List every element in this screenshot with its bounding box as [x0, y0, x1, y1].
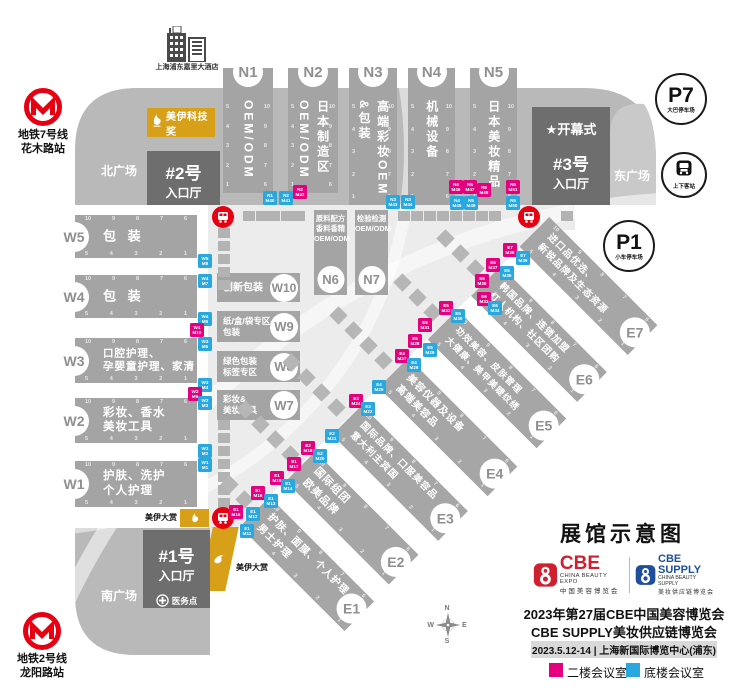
meeting-room-tag-M14[interactable]: E1M14 [281, 479, 295, 493]
grid-ticks: 54321 [75, 500, 197, 506]
star-icon: ★ [546, 122, 558, 137]
tag-code: M22 [364, 409, 373, 414]
grid-tick: 2 [546, 365, 552, 371]
hall-circle-W9: W9 [270, 313, 298, 341]
metro-line2-logo-icon [22, 611, 62, 651]
hall-W4[interactable]: W4包 装10987654321 [75, 275, 197, 318]
entrance-2-no: #2号 [147, 159, 220, 184]
south-plaza-label: 南广场 [101, 587, 147, 604]
tag-code: M48 [480, 190, 489, 195]
tag-code: M32 [442, 308, 451, 313]
meeting-room-tag-M42[interactable]: N2M42 [293, 185, 307, 199]
cbe-supply-logo-icon [635, 564, 656, 586]
grid-tick: 10 [85, 216, 91, 222]
grid-tick: 5 [85, 436, 88, 442]
meiyi-grand-award-label-2: 美伊大赏 [236, 562, 276, 573]
grid-tick: 1 [569, 388, 575, 394]
grid-tick: 1 [380, 570, 386, 576]
grid-tick: 10 [446, 104, 452, 110]
tag-code: M45 [453, 203, 462, 208]
grid-ticks: 109876 [75, 339, 197, 345]
grid-tick: 2 [291, 163, 294, 169]
grid-tick: 3 [134, 436, 137, 442]
cbe-logo-text: CBE [560, 555, 624, 572]
grid-tick: 9 [388, 127, 394, 133]
tag-code: M11 [243, 531, 252, 536]
grid-tick: 8 [598, 272, 604, 278]
grid-tick: 8 [549, 320, 555, 326]
meiyi-logo-icon [208, 548, 230, 569]
grid-tick: 6 [264, 182, 270, 188]
grid-tick: 7 [264, 163, 270, 169]
hall-label-W2: 彩妆、香水 美妆工具 [103, 406, 166, 436]
grid-tick: 8 [264, 143, 270, 149]
grid-tick: 3 [292, 573, 298, 579]
hall-N2[interactable]: N2日本制造区 OEM/ODM54321109876 [288, 68, 338, 193]
service-room-square [218, 254, 230, 264]
grid-tick: 9 [295, 528, 301, 534]
meeting-room-tag-M8[interactable]: W5M8 [198, 254, 212, 268]
meeting-room-tag-M44[interactable]: N3M44 [401, 195, 415, 209]
grid-tick: 2 [226, 163, 229, 169]
grid-ticks: 109876 [75, 216, 197, 222]
grid-tick: 3 [385, 482, 391, 488]
grid-ticks: 54321 [352, 104, 355, 200]
grid-tick: 2 [314, 595, 320, 601]
grid-tick: 7 [160, 399, 163, 405]
grid-tick: 2 [596, 318, 602, 324]
grid-tick: 6 [593, 364, 599, 370]
exhibition-map: { "colors":{"pink":"#e5007f","blue":"#29… [0, 0, 756, 690]
hall-label-W3: 口腔护理、 孕婴童护理、家清 [103, 347, 195, 374]
grid-tick: 4 [110, 500, 113, 506]
meeting-room-tag-M49[interactable]: N5M49 [464, 196, 478, 210]
tag-code: M2 [202, 451, 208, 456]
grid-ticks: 54321 [411, 104, 414, 200]
grid-tick: 3 [337, 527, 343, 533]
grid-tick: 3 [411, 149, 414, 155]
tag-code: M43 [389, 202, 398, 207]
meeting-room-tag-M48[interactable]: N5M48 [477, 183, 491, 197]
grid-tick: 2 [159, 376, 162, 382]
grid-ticks: 109876 [75, 399, 197, 405]
logo-divider [629, 557, 630, 593]
hall-N6[interactable]: 原料配方 香料香精 OEM/ODMN6 [314, 210, 347, 295]
tag-code: M25 [375, 387, 384, 392]
grid-tick: 2 [407, 504, 413, 510]
service-room-square [293, 211, 305, 221]
grid-tick: 8 [329, 143, 335, 149]
grid-tick: 9 [264, 124, 270, 130]
grid-tick: 7 [571, 342, 577, 348]
entrance-1-label: 入口厅 [143, 567, 210, 584]
entrance-2-hall[interactable]: #2号 入口厅 [147, 151, 220, 205]
hall-W2[interactable]: W2彩妆、香水 美妆工具10987654321 [75, 398, 197, 443]
service-room-square [489, 211, 501, 221]
meeting-room-tag-M28[interactable]: E5M28 [408, 334, 422, 348]
service-room-square [218, 228, 230, 238]
grid-tick: 7 [338, 571, 344, 577]
meeting-room-tag-M45[interactable]: N4M45 [450, 196, 464, 210]
meeting-room-tag-M15[interactable]: E1M15 [229, 505, 243, 519]
grid-tick: 5 [473, 104, 476, 110]
meeting-room-tag-M47[interactable]: N5M47 [463, 180, 477, 194]
grid-tick: 8 [508, 149, 514, 155]
meeting-room-tag-M11[interactable]: E1M11 [240, 524, 254, 538]
tag-code: M24 [352, 401, 361, 406]
grid-tick: 7 [388, 172, 394, 178]
meeting-room-tag-M46[interactable]: N4M46 [449, 180, 463, 194]
grid-tick: 4 [110, 311, 113, 317]
tag-code: M44 [404, 202, 413, 207]
grid-ticks: 54321 [75, 436, 197, 442]
grid-ticks: 109876 [75, 462, 197, 468]
grid-tick: 10 [85, 339, 91, 345]
metro-line2-label: 地铁2号线龙阳路站 [2, 652, 82, 681]
grid-tick: 9 [388, 437, 394, 443]
hall-label-N5: 日本美妆精品 [484, 100, 503, 190]
grid-tick: 6 [184, 216, 187, 222]
meeting-room-tag-M25[interactable]: E4M25 [372, 380, 386, 394]
grid-tick: 6 [184, 339, 187, 345]
grid-tick: 7 [383, 525, 389, 531]
pickup-dropoff-station[interactable]: 上下客站 [661, 152, 707, 198]
meiyi-logo-icon [189, 511, 201, 525]
grid-tick: 3 [473, 149, 476, 155]
tag-code: M18 [304, 448, 313, 453]
meeting-room-tag-M34[interactable]: E6M34 [488, 301, 502, 315]
grid-ticks: 54321 [226, 104, 229, 188]
tag-code: M37 [489, 265, 498, 270]
grid-tick: 1 [352, 194, 355, 200]
meeting-room-tag-M2[interactable]: W1M2 [198, 444, 212, 458]
grid-ticks: 54321 [75, 311, 197, 317]
grid-ticks: 54321 [75, 376, 197, 382]
hall-circle-N6: N6 [317, 266, 344, 293]
tag-code: M4 [202, 385, 208, 390]
service-room-square [268, 211, 280, 221]
entrance-2-label: 入口厅 [147, 184, 220, 201]
grid-tick: 6 [360, 593, 366, 599]
meiyi-logo-icon [150, 112, 164, 133]
grid-tick: 7 [160, 276, 163, 282]
tag-code: M14 [284, 486, 293, 491]
tag-code: M42 [296, 192, 305, 197]
hall-circle-N7: N7 [358, 266, 385, 293]
grid-tick: 2 [456, 459, 462, 465]
grid-tick: 9 [435, 390, 441, 396]
grid-tick: 9 [576, 249, 582, 255]
grid-tick: 8 [458, 413, 464, 419]
cbe-logo-icon [533, 562, 558, 588]
grid-tick: 6 [329, 182, 335, 188]
legend-second-floor-swatch [549, 663, 563, 677]
grid-tick: 4 [501, 320, 507, 326]
shuttle-bus-stop-icon [518, 206, 540, 228]
grid-tick: 1 [184, 251, 187, 257]
grid-tick: 9 [508, 127, 514, 133]
meeting-room-tag-M10[interactable]: W4M10 [190, 323, 204, 337]
hall-circle-N4: N4 [417, 57, 447, 87]
entrance-3-hall[interactable]: ★开幕式 #3号 入口厅 [532, 107, 610, 205]
north-plaza-label: 北广场 [101, 162, 151, 179]
grid-tick: 8 [136, 216, 139, 222]
meeting-room-tag-M22[interactable]: E3M22 [361, 402, 375, 416]
meeting-room-tag-M20[interactable]: E2M20 [313, 449, 327, 463]
meeting-room-tag-M37[interactable]: E6M37 [486, 258, 500, 272]
grid-tick: 4 [459, 365, 465, 371]
hall-circle-W2: W2 [59, 406, 89, 436]
tag-code: M34 [491, 308, 500, 313]
hall-circle-N1: N1 [233, 57, 263, 87]
legend-ground-floor-swatch [626, 663, 640, 677]
grid-tick: 3 [134, 376, 137, 382]
tag-code: M50 [509, 203, 518, 208]
date-venue-bar: 2023.5.12-14 | 上海新国际博览中心(浦东) [531, 641, 717, 658]
tag-code: M46 [452, 187, 461, 192]
meeting-room-tag-M3[interactable]: W2M3 [198, 396, 212, 410]
grid-tick: 2 [159, 436, 162, 442]
grid-tick: 3 [433, 436, 439, 442]
grid-tick: 6 [404, 546, 410, 552]
hall-label-N2: 日本制造区 OEM/ODM [294, 100, 331, 180]
service-room-square [256, 211, 268, 221]
service-room-square [218, 459, 230, 469]
hall-label-N3: 高端彩妆OEM &包装 [354, 100, 391, 196]
grid-tick: 4 [362, 459, 368, 465]
supply-logo-sub1: CHINA BEAUTY SUPPLY [658, 575, 715, 587]
opening-ceremony-label: ★开幕式 [532, 119, 610, 138]
grid-tick: 1 [226, 182, 229, 188]
tag-code: M39 [519, 258, 528, 263]
grid-tick: 6 [552, 410, 558, 416]
service-room-square [218, 280, 230, 290]
meeting-room-tag-M31[interactable]: E5M31 [418, 318, 432, 332]
meeting-room-tag-M29[interactable]: E5M29 [423, 343, 437, 357]
grid-ticks: 109876 [75, 276, 197, 282]
grid-tick: 7 [160, 339, 163, 345]
tag-code: M13 [267, 501, 276, 506]
meeting-room-tag-M35[interactable]: E6M35 [500, 266, 514, 280]
tag-code: M38 [506, 250, 515, 255]
hall-label-W1: 护肤、洗护 个人护理 [103, 469, 166, 499]
service-room-square [243, 211, 255, 221]
tag-code: M29 [426, 350, 435, 355]
tag-code: M30 [454, 316, 463, 321]
shuttle-bus-stop-icon [212, 206, 234, 228]
grid-tick: 2 [411, 172, 414, 178]
meeting-room-tag-M39[interactable]: E7M39 [516, 251, 530, 265]
tag-code: M41 [282, 198, 291, 203]
hall-W5[interactable]: W5包 装10987654321 [75, 215, 197, 258]
tag-code: M10 [193, 330, 202, 335]
service-room-square [450, 211, 462, 221]
hotel-label: 上海浦东嘉里大酒店 [146, 62, 228, 72]
meeting-room-tag-M38[interactable]: E7M38 [503, 243, 517, 257]
legend-ground-floor-label: 底楼会议室 [644, 664, 704, 681]
service-room-square [218, 267, 230, 277]
grid-tick: 8 [136, 399, 139, 405]
grid-tick: 2 [505, 411, 511, 417]
grid-tick: 7 [329, 163, 335, 169]
hall-W3[interactable]: W3口腔护理、 孕婴童护理、家清10987654321 [75, 338, 197, 383]
grid-tick: 8 [446, 149, 452, 155]
entrance-1-hall[interactable]: #1号 入口厅 医务点 [143, 530, 210, 608]
hall-W1[interactable]: W1护肤、洗护 个人护理10987654321 [75, 461, 197, 507]
tag-code: M47 [466, 187, 475, 192]
grid-tick: 1 [184, 311, 187, 317]
meeting-room-tag-M1[interactable]: W1M1 [198, 458, 212, 472]
grid-tick: 8 [410, 459, 416, 465]
service-room-square [561, 211, 573, 221]
meeting-room-tag-M36[interactable]: E6M36 [475, 274, 489, 288]
grid-tick: 4 [270, 551, 276, 557]
hall-circle-N2: N2 [298, 57, 328, 87]
grid-tick: 4 [473, 127, 476, 133]
medical-cross-icon [156, 594, 169, 607]
meeting-room-tag-M7[interactable]: W4M7 [198, 274, 212, 288]
hall-circle-W3: W3 [59, 346, 89, 376]
meeting-room-tag-M41[interactable]: N2M41 [279, 191, 293, 205]
grid-tick: 7 [160, 216, 163, 222]
service-room-square [218, 420, 230, 430]
grid-tick: 5 [411, 104, 414, 110]
parking-p1[interactable]: P1 小车停车场 [603, 220, 655, 272]
tag-code: M1 [202, 465, 208, 470]
grid-tick: 9 [112, 276, 115, 282]
grid-tick: 1 [184, 500, 187, 506]
hall-circle-W4: W4 [59, 282, 89, 312]
meeting-room-tag-M43[interactable]: N3M43 [386, 195, 400, 209]
cbe-logo-sub2: 中国美容博览会 [560, 585, 624, 595]
grid-tick: 10 [264, 104, 270, 110]
grid-ticks: 109876 [329, 104, 335, 188]
hall-circle-W7: W7 [270, 391, 298, 419]
grid-tick: 1 [184, 376, 187, 382]
grid-tick: 5 [226, 104, 229, 110]
meeting-room-tag-M12[interactable]: E1M12 [246, 507, 260, 521]
meeting-room-tag-M21[interactable]: E2M21 [325, 429, 339, 443]
meeting-room-tag-M51[interactable]: N5M51 [506, 180, 520, 194]
grid-tick: 5 [352, 104, 355, 110]
brand-logos: CBE CHINA BEAUTY EXPO 中国美容博览会 CBESUPPLY … [533, 553, 715, 597]
grid-tick: 7 [432, 481, 438, 487]
grid-tick: 2 [159, 500, 162, 506]
expo-title-line2: CBE SUPPLY美妆供应链博览会 [520, 622, 728, 641]
grid-tick: 1 [479, 482, 485, 488]
grid-tick: 6 [184, 462, 187, 468]
entrance-3-label: 入口厅 [532, 175, 610, 192]
tag-code: M20 [316, 456, 325, 461]
tag-code: M17 [290, 464, 299, 469]
meeting-room-tag-M5[interactable]: W3M5 [198, 337, 212, 351]
hall-circle-W5: W5 [59, 222, 89, 252]
service-room-square [218, 446, 230, 456]
grid-tick: 3 [291, 143, 294, 149]
meeting-room-tag-M50[interactable]: N5M50 [506, 196, 520, 210]
meeting-room-tag-M16[interactable]: E1M16 [251, 486, 265, 500]
meeting-room-tag-M26[interactable]: E4M26 [407, 358, 421, 372]
grid-tick: 3 [482, 388, 488, 394]
grid-tick: 4 [352, 127, 355, 133]
tag-code: M8 [202, 261, 208, 266]
grid-tick: 10 [329, 104, 335, 110]
meeting-room-tag-M13[interactable]: E1M13 [264, 494, 278, 508]
grid-tick: 5 [85, 311, 88, 317]
tag-code: M7 [202, 281, 208, 286]
bus-station-icon [676, 160, 692, 181]
service-room-square [281, 211, 293, 221]
meeting-room-tag-M40[interactable]: N1M40 [263, 191, 277, 205]
map-title: 展馆示意图 [545, 518, 700, 548]
meeting-room-tag-M30[interactable]: E5M30 [451, 309, 465, 323]
grid-tick: 9 [112, 462, 115, 468]
grid-tick: 8 [507, 365, 513, 371]
grid-tick: 2 [352, 172, 355, 178]
service-room-square [476, 211, 488, 221]
grid-ticks: 109876 [264, 104, 270, 188]
grid-tick: 6 [184, 399, 187, 405]
service-room-square [424, 211, 436, 221]
hall-circle-N5: N5 [479, 57, 509, 87]
grid-tick: 10 [85, 462, 91, 468]
grid-tick: 4 [291, 124, 294, 130]
grid-tick: 10 [85, 276, 91, 282]
entrance-3-no: #3号 [532, 150, 610, 175]
parking-p7[interactable]: P7 大巴停车场 [655, 73, 707, 125]
grid-tick: 7 [621, 294, 627, 300]
grid-tick: 3 [524, 343, 530, 349]
grid-tick: 9 [112, 339, 115, 345]
hall-N3[interactable]: N3高端彩妆OEM &包装54321109876 [349, 68, 397, 205]
hall-label-W5: 包 装 [103, 228, 145, 245]
grid-tick: 2 [359, 549, 365, 555]
grid-tick: 5 [85, 251, 88, 257]
east-plaza-label: 东广场 [609, 167, 655, 184]
grid-tick: 8 [317, 550, 323, 556]
grid-tick: 9 [446, 127, 452, 133]
meeting-room-tag-M17[interactable]: E1M17 [287, 457, 301, 471]
grid-tick: 9 [329, 124, 335, 130]
service-room-square [218, 433, 230, 443]
service-room-square [218, 241, 230, 251]
grid-tick: 3 [134, 251, 137, 257]
grid-ticks: 54321 [75, 251, 197, 257]
hall-N4[interactable]: N4机械设备54321109876 [408, 68, 455, 205]
grid-tick: 9 [112, 216, 115, 222]
grid-tick: 4 [411, 127, 414, 133]
grid-tick: 5 [291, 104, 294, 110]
hall-N1[interactable]: N1OEM/ODM54321109876 [223, 68, 273, 193]
grid-tick: 4 [410, 413, 416, 419]
compass-rose: N W E S [425, 605, 469, 653]
grid-tick: 8 [136, 339, 139, 345]
tag-code: M5 [202, 344, 208, 349]
meiyi-tech-award-banner: 美伊科技奖 [147, 108, 215, 137]
grid-ticks: 54321 [291, 104, 294, 188]
hall-N7[interactable]: 检验检测 OEM/ODMN7 [355, 210, 388, 295]
metro-line7-label: 地铁7号线花木路站 [3, 128, 83, 157]
grid-tick: 2 [159, 311, 162, 317]
grid-tick: 2 [473, 172, 476, 178]
grid-tick: 3 [134, 500, 137, 506]
hall-W9[interactable]: 纸/盒/袋专区 包装W9 [217, 311, 300, 342]
cbe-logo-sub1: CHINA BEAUTY EXPO [560, 573, 624, 585]
grid-tick: 2 [159, 251, 162, 257]
tag-code: M21 [328, 436, 337, 441]
hall-label-N4: 机械设备 [422, 100, 441, 160]
grid-tick: 9 [341, 483, 347, 489]
